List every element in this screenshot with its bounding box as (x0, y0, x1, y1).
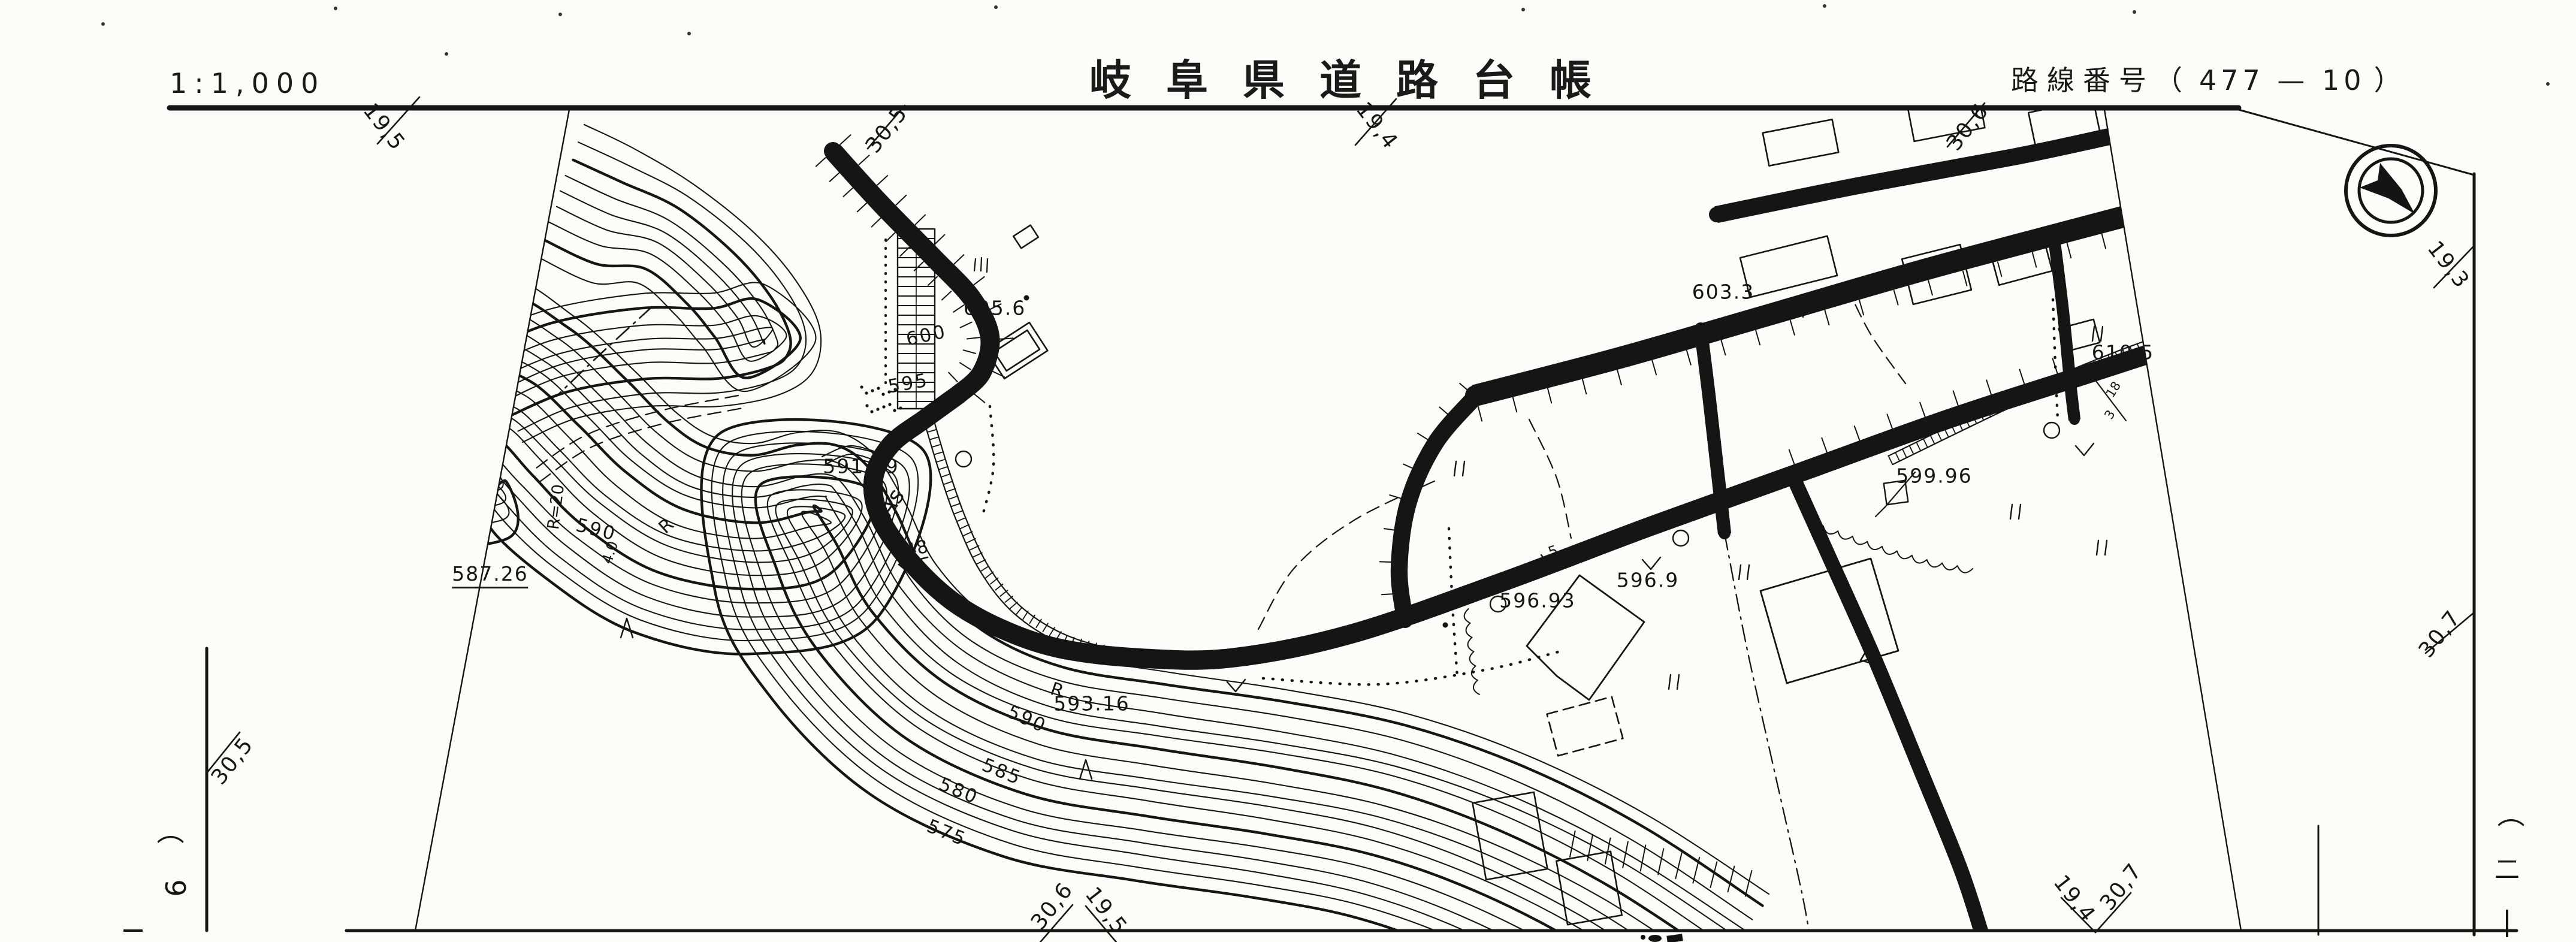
spot-elevation-label: 603.3 (1692, 280, 1754, 304)
route-number-close-paren: ） (2374, 64, 2410, 96)
left-margin-mark (123, 929, 143, 932)
right-margin-mark (2506, 910, 2508, 937)
route-number-open-paren: （ (2155, 64, 2191, 96)
route-number-label: 路線番号 (2011, 64, 2155, 96)
road-register-map-sheet: 1:1,000 岐阜県道路台帳 路線番号（477 — 10） （ 9 （ 二 1… (0, 0, 2576, 942)
page-title: 岐阜県道路台帳 (1089, 47, 1626, 107)
spot-elevation-label: 587.26 (452, 562, 528, 588)
right-margin-paren: （ (2492, 800, 2532, 828)
spot-elevation-label: 610.5 (2092, 341, 2154, 364)
right-margin-sheet-number: 二 (2495, 850, 2520, 886)
spot-elevation-label: 605.6 (964, 297, 1026, 320)
spot-elevation-label: 593.16 (1053, 692, 1130, 715)
spot-elevation-label: 591.29 (823, 455, 899, 478)
route-number-block: 路線番号（477 — 10） (2011, 59, 2410, 98)
route-number-value: 477 — 10 (2191, 64, 2374, 96)
spot-elevation-label: 599.96 (1896, 464, 1972, 488)
spot-elevation-label: 596.9 (1617, 569, 1679, 592)
spot-elevation-label: 596.93 (1499, 589, 1575, 612)
left-margin-paren: （ (152, 817, 191, 844)
left-margin-sheet-number: 9 (159, 879, 191, 896)
map-scale-label: 1:1,000 (170, 67, 325, 99)
